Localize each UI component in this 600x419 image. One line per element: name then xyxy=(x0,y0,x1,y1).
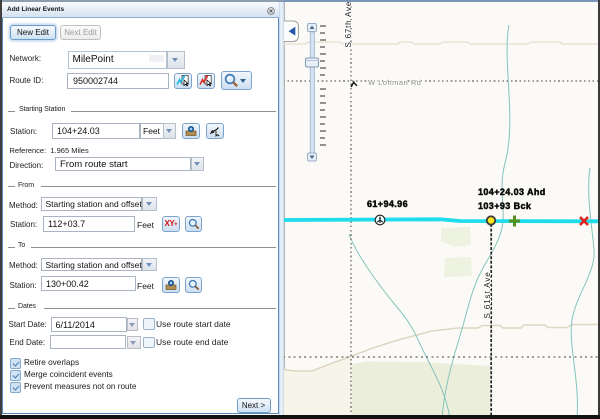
svg-text:W Lohman Rd: W Lohman Rd xyxy=(368,78,421,87)
svg-text:S 61st Ave: S 61st Ave xyxy=(483,271,492,318)
svg-text:S 67th Ave: S 67th Ave xyxy=(344,2,353,48)
svg-text:61+94.96: 61+94.96 xyxy=(367,199,408,209)
svg-text:103+93 Bck: 103+93 Bck xyxy=(478,201,532,211)
svg-text:104+24.03 Ahd: 104+24.03 Ahd xyxy=(478,187,546,197)
